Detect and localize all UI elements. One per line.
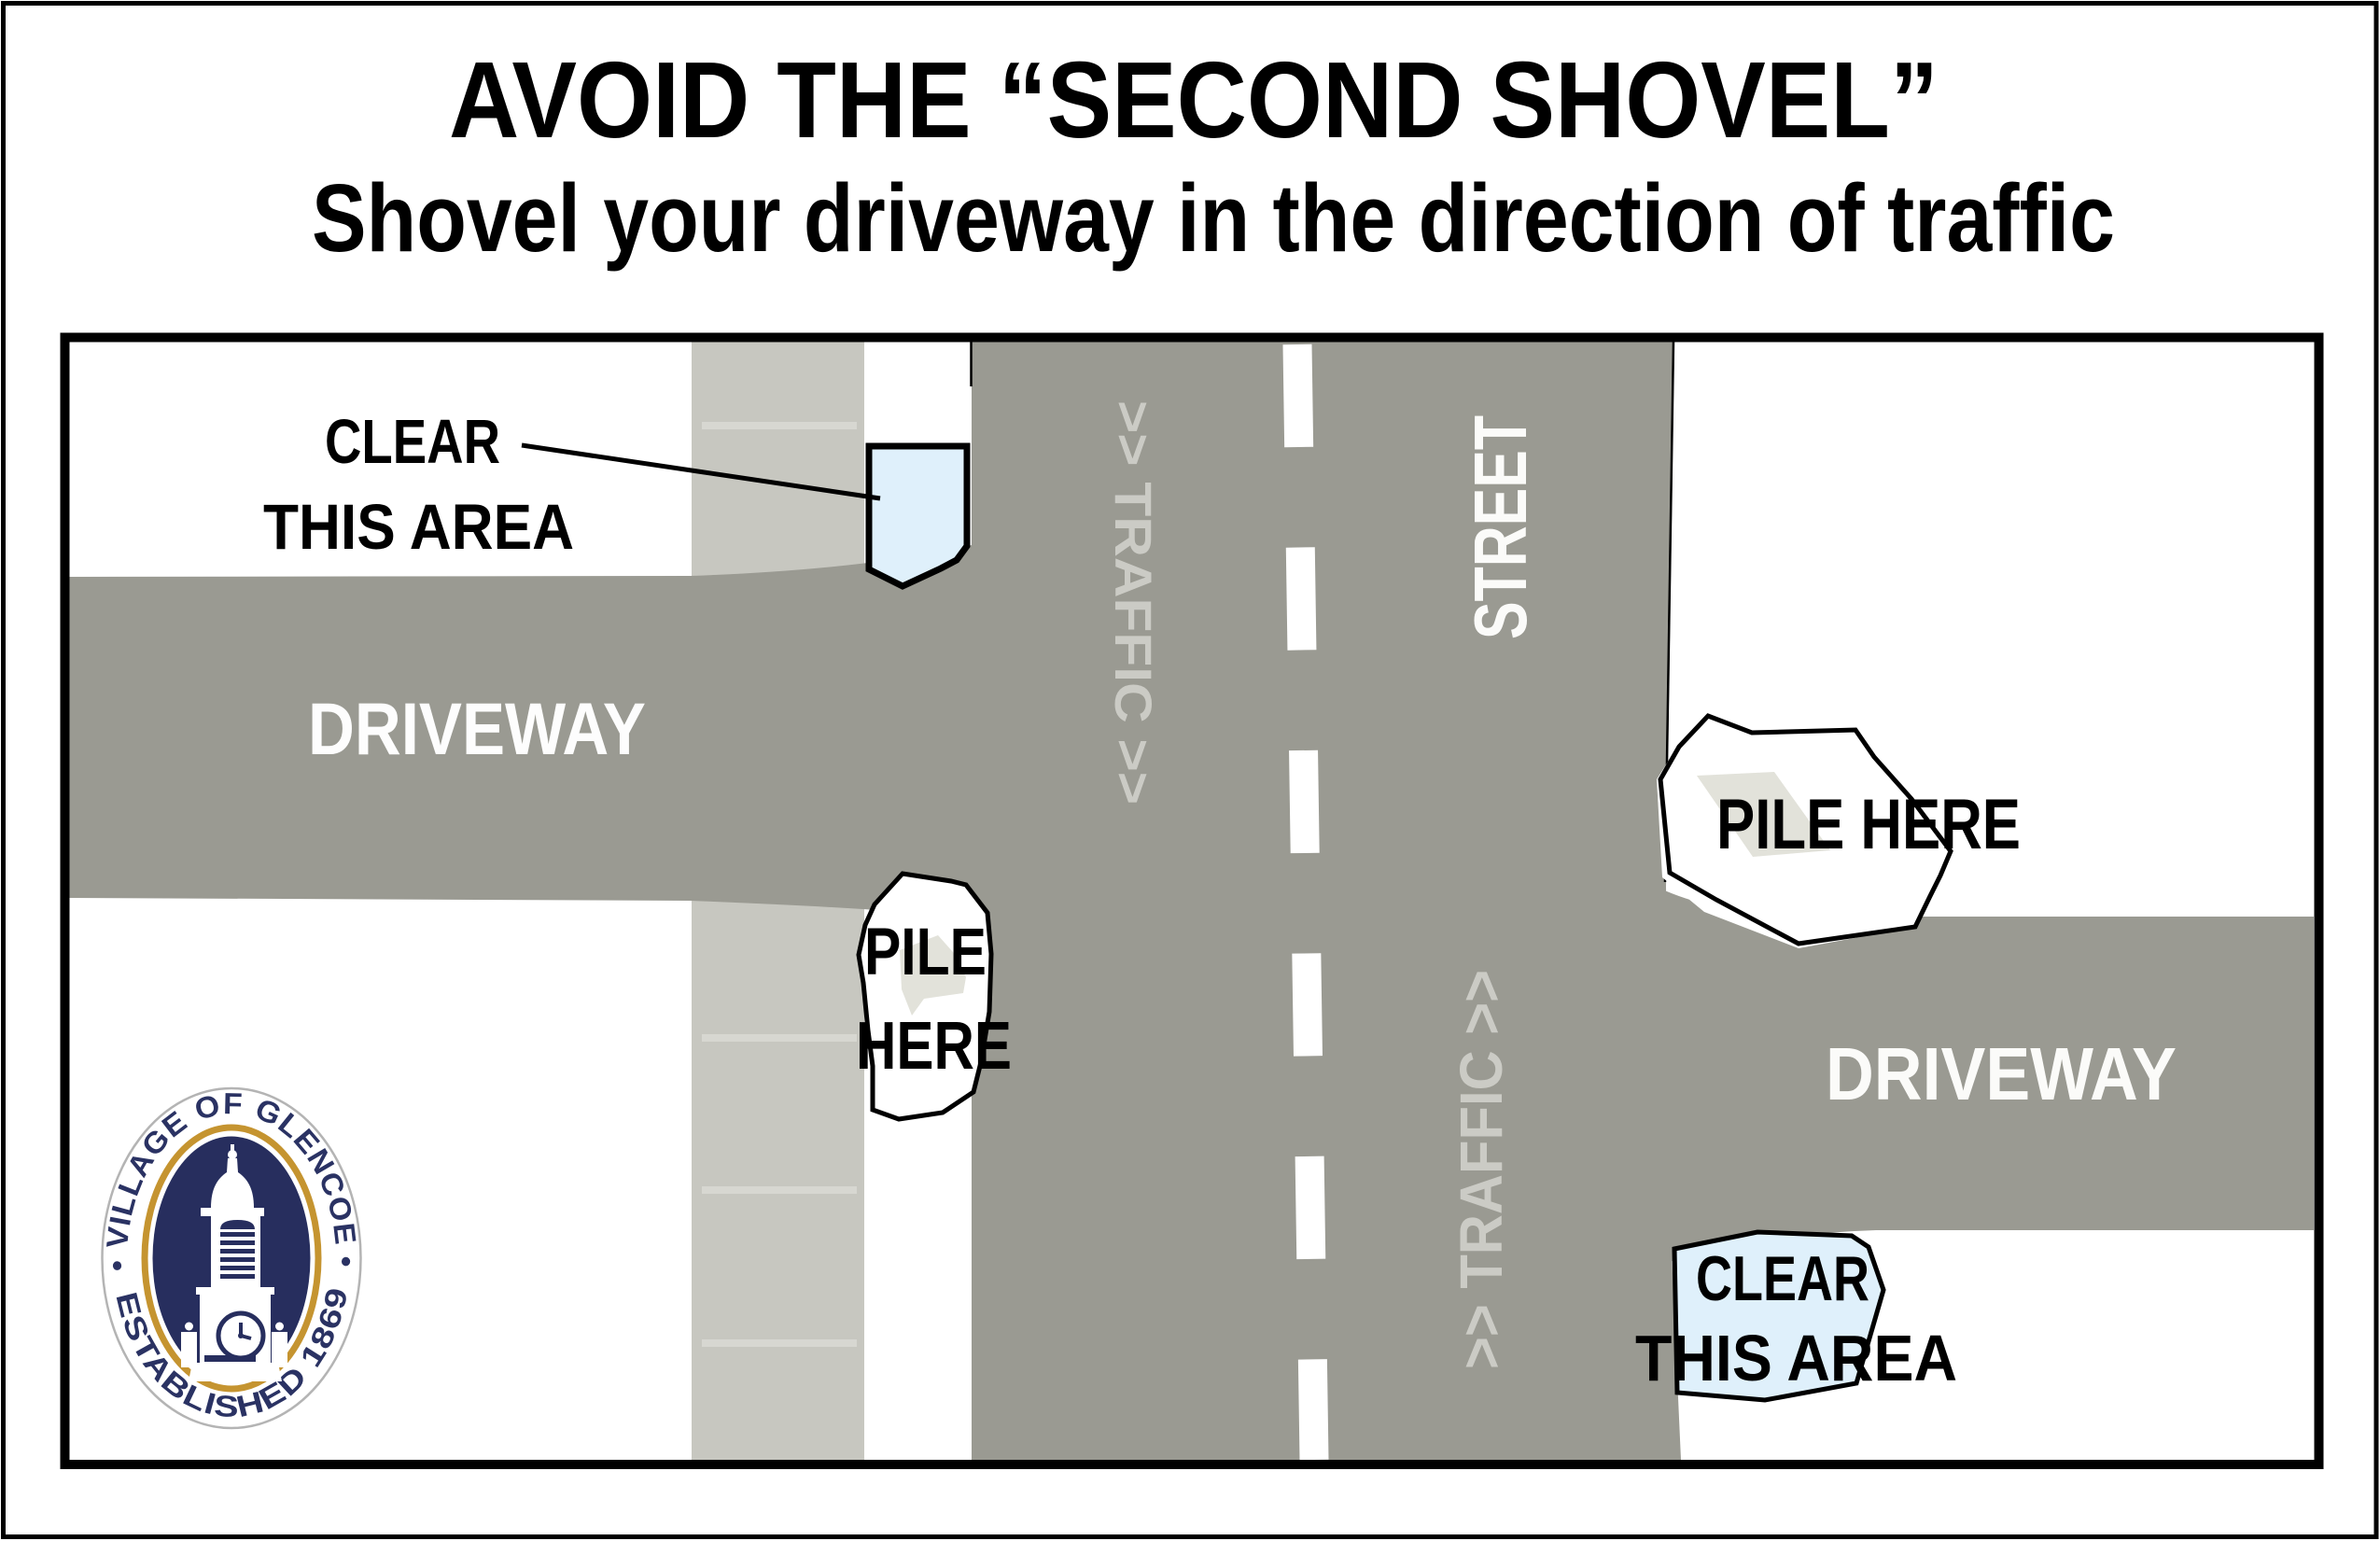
- svg-text:DRIVEWAY: DRIVEWAY: [1826, 1032, 2177, 1115]
- svg-text:Shovel your driveway in the di: Shovel your driveway in the direction of…: [312, 164, 2115, 272]
- svg-text:STREET: STREET: [1459, 415, 1542, 639]
- svg-text:THIS AREA: THIS AREA: [263, 491, 574, 563]
- svg-text:THIS AREA: THIS AREA: [1635, 1322, 1957, 1394]
- svg-text:PILE: PILE: [864, 916, 987, 989]
- svg-text:>> TRAFFIC >>: >> TRAFFIC >>: [1104, 400, 1163, 805]
- svg-text:CLEAR: CLEAR: [1696, 1243, 1869, 1314]
- svg-text:HERE: HERE: [856, 1009, 1012, 1084]
- svg-text:AVOID THE “SECOND SHOVEL”: AVOID THE “SECOND SHOVEL”: [449, 39, 1939, 161]
- svg-text:DRIVEWAY: DRIVEWAY: [308, 687, 646, 770]
- svg-text:>> TRAFFIC >>: >> TRAFFIC >>: [1448, 970, 1515, 1369]
- svg-text:PILE HERE: PILE HERE: [1716, 785, 2021, 864]
- svg-text:CLEAR: CLEAR: [325, 407, 500, 477]
